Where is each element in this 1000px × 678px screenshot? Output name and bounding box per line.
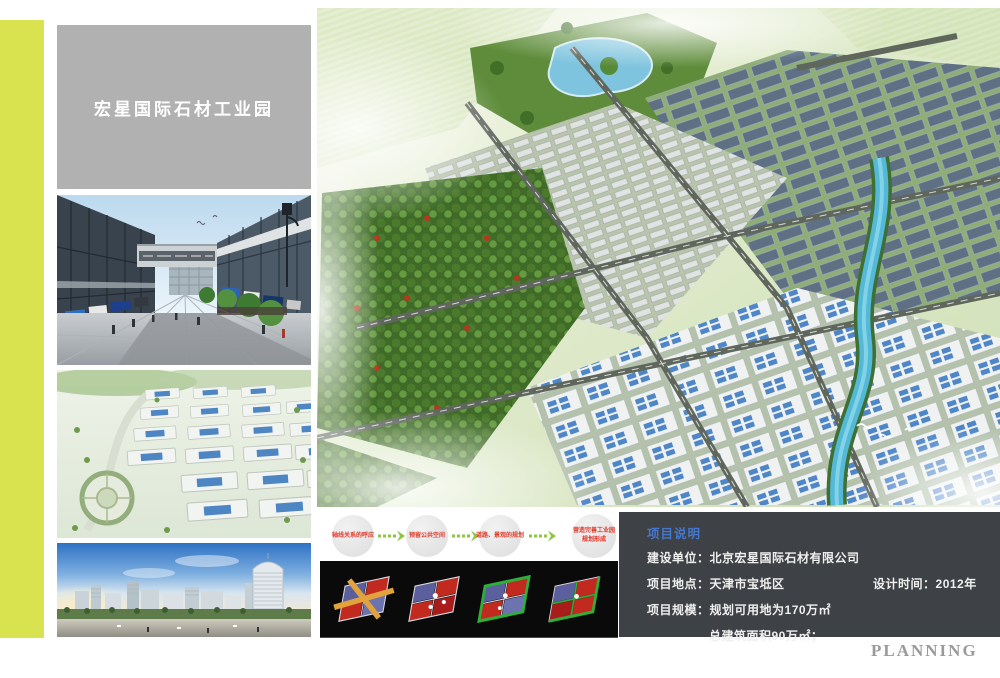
location-value: 天津市宝坻区 xyxy=(710,577,785,591)
scale-value: 规划可用地为170万㎡ xyxy=(710,603,832,617)
flow-step-4-sublabel: 规划形成 xyxy=(582,536,606,545)
presentation-board: 宏星国际石材工业园 xyxy=(0,0,1000,678)
flow-step-4-label: 营造完善工业园 xyxy=(573,527,615,536)
concept-diagram-nodes xyxy=(402,569,466,629)
project-info-title: 项目说明 xyxy=(647,523,1000,542)
location-label: 项目地点： xyxy=(647,577,710,591)
project-title: 宏星国际石材工业园 xyxy=(94,95,274,120)
project-info-row-location: 项目地点：天津市宝坻区 设计时间：2012年 xyxy=(647,575,1000,592)
design-time-value: 2012年 xyxy=(936,577,977,591)
concept-diagram-structure xyxy=(542,569,606,629)
design-process-flow: 轴线关系的呼应 预留公共空间 道路、景观的规划 营造完善工业园 规划形成 xyxy=(318,512,619,561)
skyline-illustration xyxy=(57,543,311,637)
flow-step-4: 营造完善工业园 规划形成 xyxy=(572,514,616,558)
design-time-label: 设计时间： xyxy=(873,577,936,591)
industrial-park-aerial-image xyxy=(57,370,311,538)
skyline-image xyxy=(57,543,311,637)
flow-step-1: 轴线关系的呼应 xyxy=(332,515,374,557)
industrial-park-aerial-illustration xyxy=(57,370,311,538)
scale-label: 项目规模： xyxy=(647,603,710,617)
concept-diagram-axes xyxy=(332,569,396,629)
arrow-right-icon xyxy=(529,529,557,543)
master-plan-rendering xyxy=(317,8,1000,507)
street-view-image xyxy=(57,195,311,365)
builder-label: 建设单位： xyxy=(647,551,710,565)
planning-watermark: PLANNING xyxy=(871,641,978,661)
design-time: 设计时间：2012年 xyxy=(873,575,977,592)
project-info-row-builder: 建设单位：北京宏星国际石材有限公司 xyxy=(647,549,1000,566)
flow-step-3: 道路、景观的规划 xyxy=(479,515,521,557)
street-view-illustration xyxy=(57,195,311,365)
flow-step-1-label: 轴线关系的呼应 xyxy=(332,532,374,541)
project-info-row-scale: 项目规模：规划可用地为170万㎡ xyxy=(647,601,1000,618)
concept-diagram-panel xyxy=(320,561,618,638)
flow-step-2-label: 预留公共空间 xyxy=(409,532,445,541)
master-plan-illustration xyxy=(317,8,1000,507)
project-info-panel: 项目说明 建设单位：北京宏星国际石材有限公司 项目地点：天津市宝坻区 设计时间：… xyxy=(619,512,1000,637)
project-title-box: 宏星国际石材工业园 xyxy=(57,25,311,189)
flow-step-2: 预留公共空间 xyxy=(406,515,448,557)
floor-area-value: 总建筑面积90万㎡； xyxy=(709,629,823,643)
builder-value: 北京宏星国际石材有限公司 xyxy=(710,551,860,565)
arrow-right-icon xyxy=(378,529,406,543)
flow-step-3-label: 道路、景观的规划 xyxy=(476,532,524,541)
accent-bar xyxy=(0,20,44,638)
concept-diagram-greenways xyxy=(472,569,536,629)
